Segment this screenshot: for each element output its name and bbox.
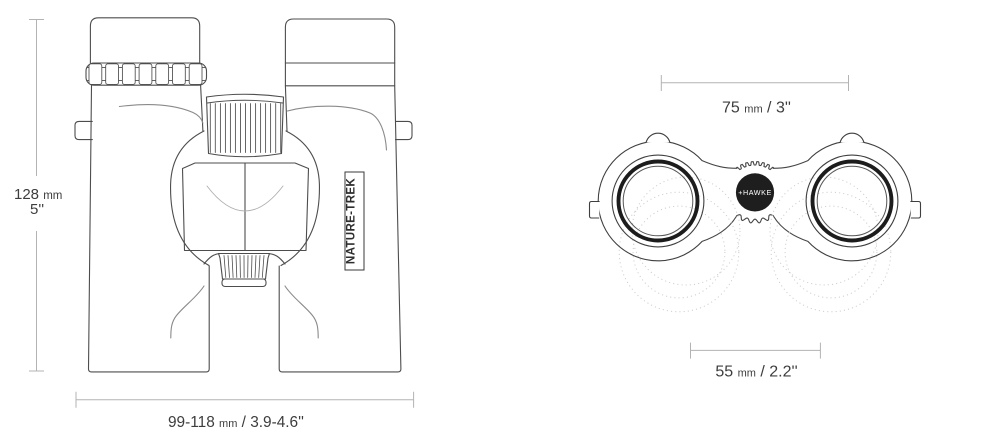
svg-text:5'': 5''	[30, 201, 44, 218]
svg-text:75 mm / 3'': 75 mm / 3''	[722, 100, 791, 117]
svg-text:+HAWKE: +HAWKE	[738, 188, 772, 197]
svg-text:55 mm / 2.2'': 55 mm / 2.2''	[715, 364, 797, 381]
svg-text:99-118 mm / 3.9-4.6'': 99-118 mm / 3.9-4.6''	[168, 414, 304, 431]
svg-text:NATURE-TREK: NATURE-TREK	[345, 178, 358, 264]
